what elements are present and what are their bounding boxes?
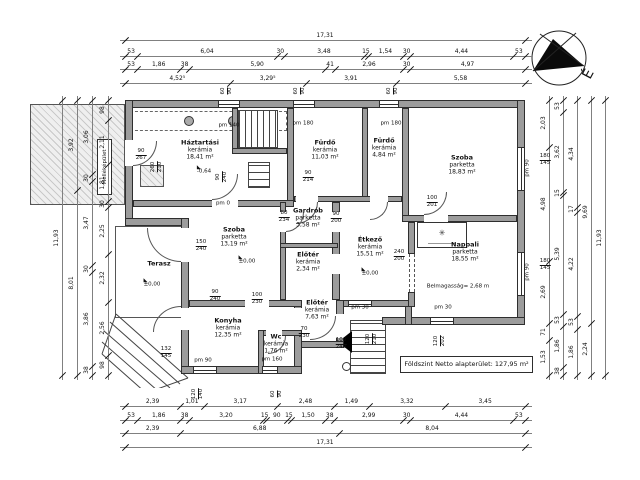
annotation: 6090 (294, 88, 306, 95)
annotation-top: 240 (394, 250, 405, 256)
annotation: pm 140 (218, 123, 239, 129)
annotation-bottom: 240 (336, 344, 347, 351)
dim-label: 3,20 (219, 413, 232, 419)
wall (402, 108, 409, 222)
dim-label: 30 (403, 49, 411, 55)
room-name: Étkező (356, 237, 383, 244)
annotation: 100201 (427, 196, 438, 208)
room-name: Wc (264, 334, 288, 341)
door-opening (181, 228, 189, 262)
annotation-top: 60 (294, 88, 300, 95)
dim-label: 1,81 (100, 176, 106, 189)
annotation-top: 90 (210, 290, 221, 296)
annotation: 180145 (540, 154, 551, 166)
annotation-top: 180 (540, 154, 551, 160)
annotation-top: 60 (221, 88, 227, 95)
dim-label: 4,44 (455, 413, 468, 419)
floor-plan-canvas: Melléképület ✳ Földszint Netto alapterül… (0, 0, 640, 480)
room-name: Gardrób (293, 208, 323, 215)
annotation-top: 260 (151, 162, 157, 173)
room-label: Szobaparketta18,83 m² (448, 155, 475, 176)
annotation-top: 70 (299, 327, 310, 333)
dim-label: 4,98 (541, 197, 547, 210)
opening-dash (414, 254, 415, 292)
room-name: Háztartási (181, 140, 219, 147)
annotation: pm 180 (380, 121, 401, 127)
dim-label: 4,97 (461, 62, 474, 68)
room-name: Szoba (448, 155, 475, 162)
dim-label: 98 (100, 106, 106, 114)
summary-box: Földszint Netto alapterület: 127,95 m² (400, 356, 533, 373)
annotation-bottom: 214 (303, 177, 314, 184)
annotation-top: 150 (196, 240, 207, 246)
dim-label: 53 (555, 316, 561, 324)
room-material: parketta (293, 215, 323, 222)
annotation-top: 60 (387, 88, 393, 95)
door-opening (336, 314, 344, 338)
annotation-bottom: 240 (222, 172, 229, 183)
annotation: 180145 (540, 259, 551, 271)
dim-label: 3,48 (317, 49, 330, 55)
dim-label: 1,01 (185, 399, 198, 405)
dim-line (92, 96, 93, 380)
dim-label: 30 (403, 62, 411, 68)
window-mullion (380, 104, 398, 105)
annotation: 120140 (192, 389, 204, 400)
dim-label: 4,34 (569, 147, 575, 160)
window (218, 100, 240, 108)
annotation: pm 90 (194, 358, 212, 364)
annotation-top: 90 (303, 171, 314, 177)
annotation-top: 80 (279, 211, 290, 217)
dim-label: 1,86 (152, 62, 165, 68)
annotation-bottom: 140 (198, 389, 205, 400)
room-label: Szobaparketta13,19 m² (220, 227, 247, 248)
dim-label: 5,58 (454, 76, 467, 82)
dim-line (108, 96, 109, 380)
annotation-bottom: 145 (161, 353, 172, 360)
annotation-bottom: 202 (440, 336, 447, 347)
dim-label: 3,86 (84, 312, 90, 325)
room-label: Étkezőkerámia15,51 m² (356, 237, 383, 258)
dim-label: 3,62 (555, 145, 561, 158)
dim-label: 2,11 (100, 135, 106, 148)
dim-label: 11,93 (54, 229, 60, 246)
level-mark-icon (239, 255, 243, 259)
room-label: Előtérkerámia7,63 m² (305, 300, 329, 321)
annotation-bottom: 234 (279, 217, 290, 224)
room-area: 13,19 m² (220, 241, 247, 248)
annotation: pm 30 (434, 305, 452, 311)
dim-label: 38 (181, 413, 189, 419)
wall (280, 243, 338, 248)
window-mullion (294, 104, 314, 105)
dim-label: 53 (555, 102, 561, 110)
dim-label: 8,01 (69, 276, 75, 289)
annotation: 100230 (252, 293, 263, 305)
room-label: Fürdőkerámia4,84 m² (372, 138, 396, 159)
dim-line (120, 40, 532, 41)
room-label: Fürdőkerámia11,03 m² (311, 140, 338, 161)
window (430, 317, 454, 325)
wall (408, 222, 415, 254)
dim-label: 4,52⁵ (169, 76, 185, 82)
dim-label: 1,54 (379, 49, 392, 55)
annotation: 240200 (394, 250, 405, 262)
level-mark-icon (362, 267, 366, 271)
dim-line (120, 56, 532, 57)
room-material: kerámia (356, 244, 383, 251)
dim-label: 4,22 (569, 257, 575, 270)
dim-label: 30 (403, 413, 411, 419)
room-name: Konyha (214, 318, 241, 325)
annotation-bottom: 90 (300, 88, 307, 95)
annotation-bottom: 210 (157, 162, 164, 173)
room-material: kerámia (264, 341, 288, 348)
dim-label: 15 (555, 189, 561, 197)
annotation: 120202 (434, 336, 446, 347)
dim-label: 30 (84, 174, 90, 182)
dim-label: 1,50 (301, 413, 314, 419)
annotation-bottom: 201 (427, 202, 438, 209)
window (293, 100, 315, 108)
annotation-bottom: 200 (331, 218, 342, 225)
annotation: pm 160 (261, 357, 282, 363)
dim-label: 2,48 (299, 399, 312, 405)
annotation: 90240 (210, 290, 221, 302)
annotation: 80234 (279, 211, 290, 223)
wall (125, 218, 189, 226)
dim-line (577, 96, 578, 380)
dim-line (77, 96, 78, 380)
annotation: pm 90 (525, 159, 531, 177)
room-name: Előtér (296, 252, 320, 259)
staircase-main (238, 110, 278, 148)
dim-label: 1,86 (152, 413, 165, 419)
annotation: Belmagasság= 2,68 m (427, 284, 490, 290)
dim-label: 17,31 (316, 33, 333, 39)
annotation: 260210 (151, 162, 163, 173)
dim-label: 8,04 (425, 426, 438, 432)
room-area: 11,03 m² (311, 154, 338, 161)
annotation-top: 100 (252, 293, 263, 299)
dim-label: 53 (515, 49, 523, 55)
door-opening (125, 140, 133, 166)
staircase-lower-flight (248, 162, 270, 188)
annotation: 90200 (331, 212, 342, 224)
level-mark-icon (144, 278, 148, 282)
dim-line (120, 433, 532, 434)
window-mullion (521, 253, 522, 295)
room-label: Terasz (147, 261, 170, 268)
annotation-bottom: 230 (299, 333, 310, 340)
dim-line (120, 83, 532, 84)
room-area: 1,76 m² (264, 348, 288, 355)
window-mullion (194, 370, 216, 371)
annotation: pm 90 (525, 263, 531, 281)
room-material: parketta (448, 162, 475, 169)
annotation-top: 60 (271, 391, 277, 398)
window-mullion (219, 104, 239, 105)
room-name: Előtér (305, 300, 329, 307)
room-material: kerámia (311, 147, 338, 154)
window-mullion (521, 148, 522, 190)
dim-label: 4,44 (455, 49, 468, 55)
dim-label: 53 (127, 49, 135, 55)
north-letter: É (579, 66, 598, 82)
room-material: parketta (220, 234, 247, 241)
annotation-bottom: 145 (540, 160, 551, 167)
room-material: kerámia (305, 307, 329, 314)
room-label: Wckerámia1,76 m² (264, 334, 288, 355)
door-swing (370, 202, 388, 220)
dim-label: 3,29⁵ (260, 76, 276, 82)
annotation-bottom: 230 (252, 299, 263, 306)
room-name: Terasz (147, 261, 170, 268)
annotation-bottom: 210 (372, 334, 379, 345)
dim-label: 2,56 (100, 322, 106, 335)
annotation: ±0,00 (362, 267, 379, 277)
opening-dash (409, 254, 410, 292)
dim-label: 2,32 (100, 271, 106, 284)
wall (402, 215, 517, 222)
annotation-top: 120 (434, 336, 440, 347)
dim-label: 3,17 (234, 399, 247, 405)
annotation: pm 0 (216, 201, 230, 207)
annotation: 90214 (303, 171, 314, 183)
dim-label: 2,39 (146, 399, 159, 405)
dim-line (549, 96, 550, 380)
dim-label: 1,53 (541, 351, 547, 364)
dim-label: 30 (84, 265, 90, 273)
room-material: kerámia (296, 259, 320, 266)
dim-label: 17,31 (316, 440, 333, 446)
room-area: 12,35 m² (214, 332, 241, 339)
room-area: 18,55 m² (451, 256, 479, 263)
room-material: kerámia (181, 147, 219, 154)
room-material: kerámia (214, 325, 241, 332)
dim-label: 5,90 (250, 62, 263, 68)
dim-label: 5,39 (555, 248, 561, 261)
annotation-bottom: 240 (196, 246, 207, 253)
annotation-bottom: 90 (227, 88, 234, 95)
annotation: 6090 (221, 88, 233, 95)
dim-line (605, 96, 606, 380)
room-area: 2,34 m² (296, 266, 320, 273)
summary-text: Földszint Netto alapterület: 127,95 m² (404, 360, 528, 368)
wall (362, 108, 368, 198)
annotation-top: 132 (161, 347, 172, 353)
annotation-bottom: 145 (540, 265, 551, 272)
annotation: 90267 (136, 149, 147, 161)
annotation: ±0,00 (144, 278, 161, 288)
dim-label: 2,03 (541, 117, 547, 130)
annotation: 70230 (299, 327, 310, 339)
window (193, 366, 217, 374)
annotation-bottom: 90 (277, 391, 284, 398)
dim-label: 38 (84, 367, 90, 375)
room-material: kerámia (372, 145, 396, 152)
room-name: Nappali (451, 242, 479, 249)
dim-label: 2,24 (583, 342, 589, 355)
window (262, 366, 278, 374)
annotation: pm 180 (292, 121, 313, 127)
annotation: 100240 (336, 338, 347, 350)
dim-label: 98 (100, 361, 106, 369)
dim-label: 3,45 (478, 399, 491, 405)
annotation: pm 30 (351, 305, 369, 311)
dim-label: 2,39 (146, 426, 159, 432)
annotation-top: 180 (540, 259, 551, 265)
dim-label: 53 (127, 413, 135, 419)
north-arrow-icon: É (526, 22, 610, 96)
room-area: 4,84 m² (372, 152, 396, 159)
dim-label: 2,99 (362, 413, 375, 419)
dim-label: 90 (273, 413, 281, 419)
dim-label: 53 (569, 319, 575, 327)
door-opening (332, 254, 340, 274)
dim-label: 71 (541, 328, 547, 336)
dim-label: 1,86 (555, 339, 561, 352)
annotation-top: 100 (336, 338, 347, 344)
dim-label: 3,47 (84, 217, 90, 230)
dim-label: 3,32 (400, 399, 413, 405)
door-opening (424, 215, 448, 222)
room-area: 18,41 m² (181, 154, 219, 161)
annotation: -0,64 (197, 165, 211, 175)
room-name: Fürdő (372, 138, 396, 145)
wall (232, 148, 287, 154)
room-area: 7,63 m² (305, 314, 329, 321)
stove-symbol-icon: ✳ (439, 228, 446, 237)
dim-label: 38 (181, 62, 189, 68)
dim-line (563, 96, 564, 380)
room-label: Konyhakerámia12,35 m² (214, 318, 241, 339)
entry-steps (350, 320, 386, 374)
dim-label: 3,06 (84, 130, 90, 143)
annotation-bottom: 90 (393, 88, 400, 95)
annotation-top: 100 (427, 196, 438, 202)
room-name: Fürdő (311, 140, 338, 147)
annotation: 120210 (366, 334, 378, 345)
pergola-column (184, 116, 194, 126)
annotation-top: 90 (331, 212, 342, 218)
dim-label: 38 (555, 367, 561, 375)
window-mullion (431, 321, 453, 322)
dim-label: 6,88 (253, 426, 266, 432)
annotation-top: 120 (366, 334, 372, 345)
dim-label: 38 (326, 413, 334, 419)
annotation-top: 90 (136, 149, 147, 155)
dim-line (120, 447, 532, 448)
dim-label: 17 (569, 206, 575, 214)
dim-line (62, 96, 63, 380)
level-mark-icon (197, 165, 201, 169)
dim-label: 11,93 (597, 229, 603, 246)
room-area: 18,83 m² (448, 169, 475, 176)
dim-label: 1,49 (345, 399, 358, 405)
dim-label: 6,04 (200, 49, 213, 55)
dim-label: 2,69 (541, 286, 547, 299)
wall (408, 292, 415, 307)
dim-label: 1,86 (569, 345, 575, 358)
room-label: Háztartásikerámia18,41 m² (181, 140, 219, 161)
dim-line (591, 96, 592, 380)
window-mullion (263, 370, 277, 371)
dim-label: 53 (127, 62, 135, 68)
door-opening (181, 308, 189, 330)
annotation: 150240 (196, 240, 207, 252)
annotation-top: 120 (192, 389, 198, 400)
room-name: Szoba (220, 227, 247, 234)
window (379, 100, 399, 108)
dim-label: 2,96 (362, 62, 375, 68)
dim-label: 3,91 (344, 76, 357, 82)
annotation-bottom: 200 (394, 256, 405, 263)
dim-label: 3,92 (69, 138, 75, 151)
annotation: 132145 (161, 347, 172, 359)
room-label: Előtérkerámia2,34 m² (296, 252, 320, 273)
room-label: Gardróbparketta3,58 m² (293, 208, 323, 229)
room-area: 3,58 m² (293, 222, 323, 229)
dim-label: 9,69 (583, 205, 589, 218)
annotation: ±0,00 (239, 255, 256, 265)
wall (125, 100, 525, 108)
dim-label: 2,25 (100, 224, 106, 237)
dim-label: 30 (276, 49, 284, 55)
annotation-bottom: 267 (136, 155, 147, 162)
dim-label: 30 (100, 201, 106, 209)
annotation: 6090 (271, 391, 283, 398)
dim-label: 41 (326, 62, 334, 68)
room-material: parketta (451, 249, 479, 256)
room-label: Nappaliparketta18,55 m² (451, 242, 479, 263)
annotation-bottom: 240 (210, 296, 221, 303)
annotation: 6090 (387, 88, 399, 95)
dim-line (120, 406, 532, 407)
annotation: 90240 (216, 172, 228, 183)
entry-column (342, 362, 351, 371)
room-area: 15,51 m² (356, 251, 383, 258)
dim-label: 53 (515, 413, 523, 419)
